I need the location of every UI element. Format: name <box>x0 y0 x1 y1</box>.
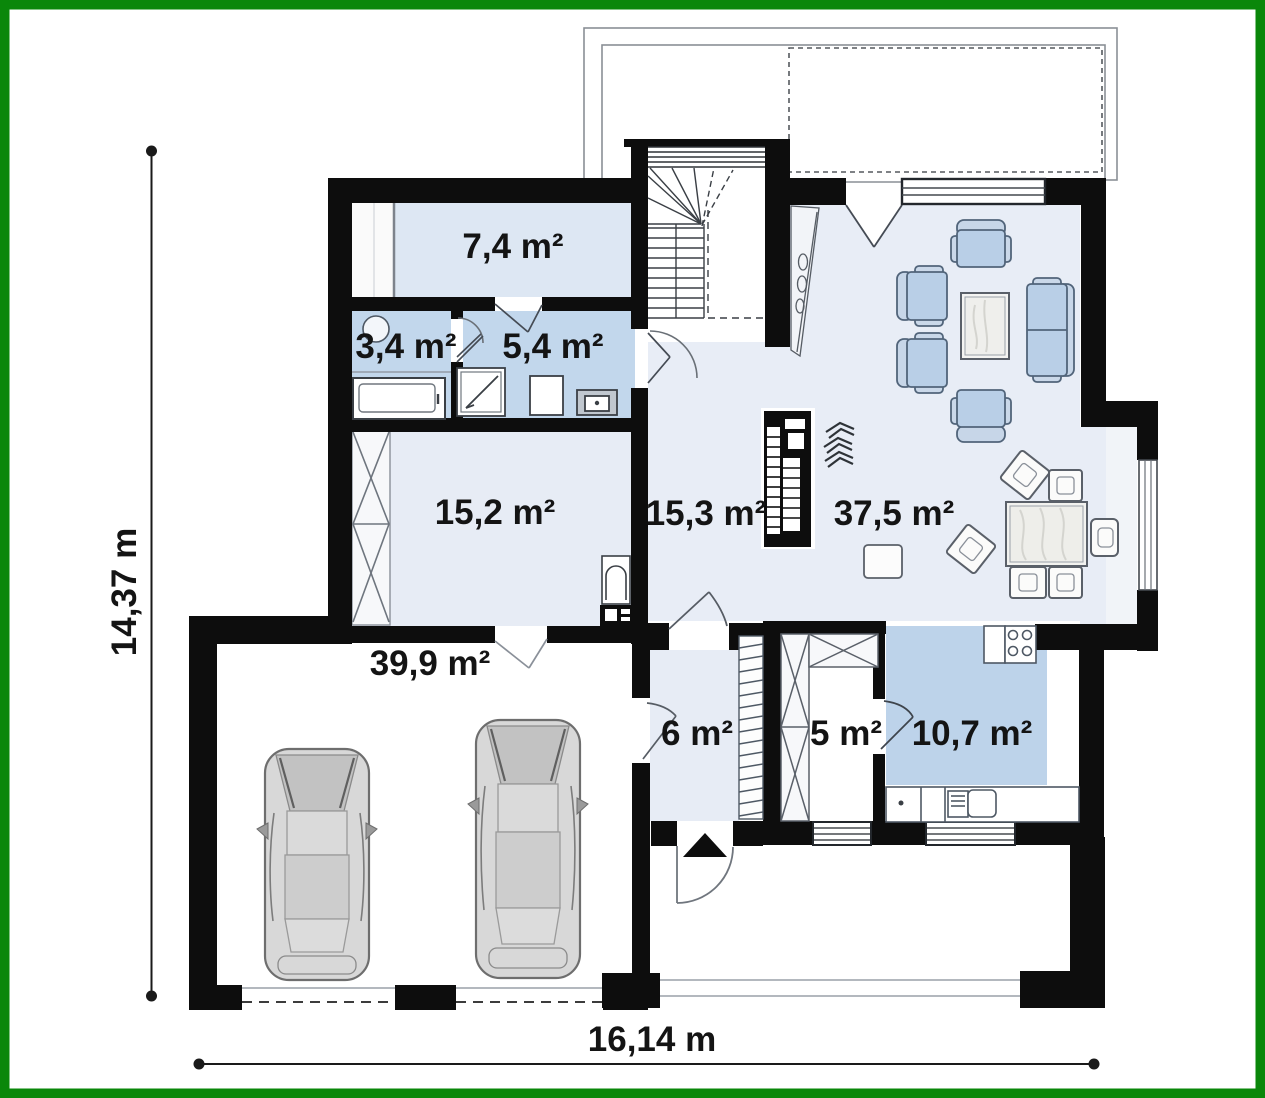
svg-text:10,7 m²: 10,7 m² <box>912 714 1033 753</box>
svg-text:5,4 m²: 5,4 m² <box>502 327 603 366</box>
svg-text:3,4 m²: 3,4 m² <box>355 327 456 366</box>
svg-text:16,14 m: 16,14 m <box>588 1020 716 1059</box>
svg-text:7,4 m²: 7,4 m² <box>462 227 563 266</box>
svg-text:5 m²: 5 m² <box>810 714 882 753</box>
svg-text:39,9 m²: 39,9 m² <box>370 644 491 683</box>
svg-text:14,37 m: 14,37 m <box>105 528 144 656</box>
svg-text:15,3 m²: 15,3 m² <box>646 494 767 533</box>
svg-text:37,5 m²: 37,5 m² <box>834 494 955 533</box>
svg-text:6 m²: 6 m² <box>661 714 733 753</box>
svg-text:15,2 m²: 15,2 m² <box>435 493 556 532</box>
